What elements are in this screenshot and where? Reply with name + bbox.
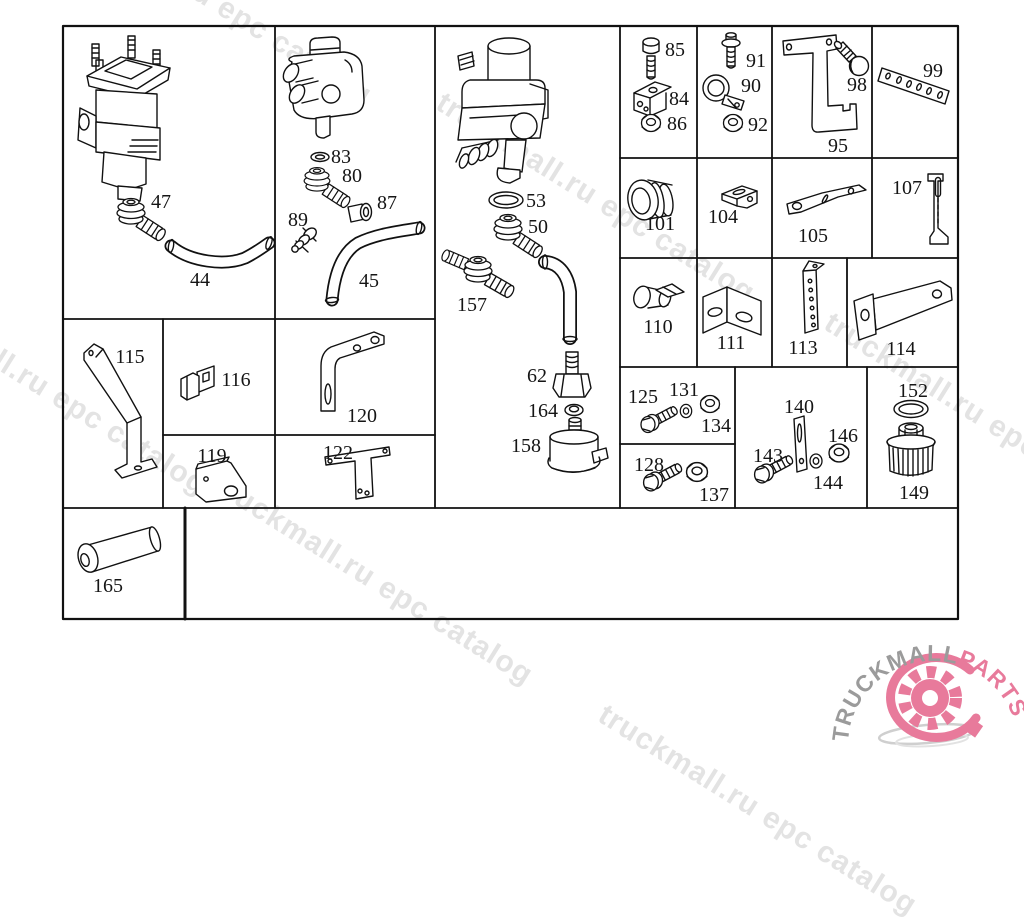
part-140-strip-drawing xyxy=(794,416,807,472)
part-149-cap-drawing xyxy=(887,423,935,476)
part-label-116: 116 xyxy=(221,370,250,390)
part-label-50: 50 xyxy=(528,217,548,237)
part-134-nut-drawing xyxy=(701,396,720,413)
part-valve-assembly-2-drawing xyxy=(280,37,364,138)
part-90-clamp-drawing xyxy=(703,75,744,110)
part-label-104: 104 xyxy=(708,207,738,227)
part-144-washer-drawing xyxy=(810,454,822,468)
part-label-113: 113 xyxy=(788,338,817,358)
part-label-143: 143 xyxy=(753,446,783,466)
part-label-87: 87 xyxy=(377,193,397,213)
part-label-90: 90 xyxy=(741,76,761,96)
part-label-53: 53 xyxy=(526,191,546,211)
part-valve-assembly-3-drawing xyxy=(456,38,548,183)
part-label-131: 131 xyxy=(669,380,699,400)
part-86-nut-drawing xyxy=(642,115,661,132)
part-label-89: 89 xyxy=(288,210,308,230)
part-53-oring-drawing xyxy=(489,192,523,208)
part-label-85: 85 xyxy=(665,40,685,60)
part-label-158: 158 xyxy=(511,436,541,456)
part-label-80: 80 xyxy=(342,166,362,186)
part-label-91: 91 xyxy=(746,51,766,71)
part-85-bolt-drawing xyxy=(643,38,659,79)
part-116-bracket-drawing xyxy=(181,366,214,400)
part-label-110: 110 xyxy=(643,317,672,337)
part-label-92: 92 xyxy=(748,115,768,135)
part-label-47: 47 xyxy=(151,192,171,212)
part-44-hose-drawing xyxy=(167,236,273,262)
part-label-115: 115 xyxy=(115,347,144,367)
part-152-oring-drawing xyxy=(894,401,928,418)
part-158-cap-drawing xyxy=(548,418,608,473)
truckmall-logo: TRUCKMALLPARTS xyxy=(832,634,1024,750)
part-label-149: 149 xyxy=(899,483,929,503)
part-label-101: 101 xyxy=(645,214,675,234)
part-label-44: 44 xyxy=(190,270,210,290)
part-105-bracket-drawing xyxy=(787,185,866,214)
part-92-nut-drawing xyxy=(724,115,743,132)
part-131-washer-drawing xyxy=(680,404,691,417)
part-label-114: 114 xyxy=(886,339,915,359)
part-label-86: 86 xyxy=(667,114,687,134)
part-label-146: 146 xyxy=(828,426,858,446)
part-label-128: 128 xyxy=(634,455,664,475)
part-label-137: 137 xyxy=(699,485,729,505)
part-111-bracket-drawing xyxy=(703,287,761,335)
part-valve-assembly-1-drawing xyxy=(78,36,170,201)
part-label-164: 164 xyxy=(528,401,558,421)
part-label-95: 95 xyxy=(828,136,848,156)
part-91-bolt-drawing xyxy=(722,33,740,68)
part-label-99: 99 xyxy=(923,61,943,81)
part-165-sleeve-drawing xyxy=(75,526,163,575)
part-label-125: 125 xyxy=(628,387,658,407)
part-hose-drawing xyxy=(543,255,578,342)
parts-catalog-page: { "watermark": { "text": "truckmall.ru e… xyxy=(0,0,1024,750)
part-84-bracket-drawing xyxy=(634,82,671,116)
part-125-bolt-drawing xyxy=(641,405,679,432)
part-137-nut-drawing xyxy=(687,463,708,482)
part-label-165: 165 xyxy=(93,576,123,596)
part-120-bracket-drawing xyxy=(321,332,384,411)
part-label-134: 134 xyxy=(701,416,731,436)
part-label-62: 62 xyxy=(527,366,547,386)
part-label-45: 45 xyxy=(359,271,379,291)
part-110-clip-drawing xyxy=(631,284,684,310)
part-107-bracket-drawing xyxy=(928,174,948,244)
part-label-152: 152 xyxy=(898,381,928,401)
part-label-105: 105 xyxy=(798,226,828,246)
part-98-screw-drawing xyxy=(833,40,868,75)
part-label-119: 119 xyxy=(197,446,226,466)
part-label-111: 111 xyxy=(717,333,746,353)
part-62-fitting-drawing xyxy=(553,352,591,397)
part-87-valve-drawing xyxy=(348,204,372,223)
part-label-83: 83 xyxy=(331,147,351,167)
part-104-bracket-drawing xyxy=(722,186,757,208)
part-114-bracket-drawing xyxy=(854,281,952,340)
part-label-144: 144 xyxy=(813,473,843,493)
part-157-fitting-drawing xyxy=(440,249,515,299)
part-83-oring-drawing xyxy=(311,153,329,162)
part-label-120: 120 xyxy=(347,406,377,426)
part-label-107: 107 xyxy=(892,178,922,198)
part-label-140: 140 xyxy=(784,397,814,417)
part-label-157: 157 xyxy=(457,295,487,315)
part-label-98: 98 xyxy=(847,75,867,95)
part-164-washer-drawing xyxy=(565,405,583,416)
logo-accent-text: PARTS xyxy=(955,645,1024,721)
part-113-strip-drawing xyxy=(803,261,824,333)
part-label-84: 84 xyxy=(669,89,689,109)
part-label-122: 122 xyxy=(323,443,353,463)
